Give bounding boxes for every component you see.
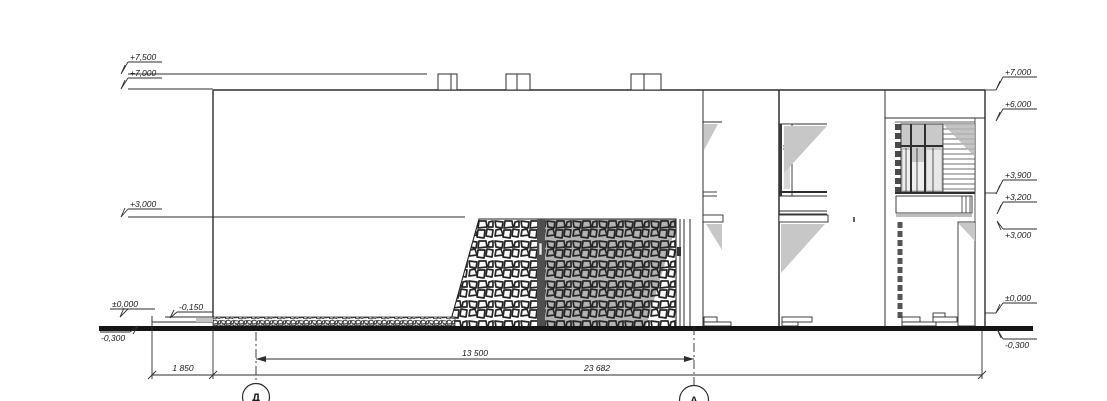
dimension-label: 23 682 [583, 363, 610, 373]
elevation-sheet: +7,500 +7,000 +3,000 ±0,000 -0,150 -0,30… [0, 0, 1107, 401]
axis-label: Д [252, 392, 260, 401]
bay-2 [779, 124, 854, 326]
level-label: +7,000 [1005, 67, 1032, 77]
level-label: +3,000 [130, 199, 157, 209]
level-label: +7,000 [130, 68, 157, 78]
level-label: -0,300 [101, 333, 125, 343]
elevation-drawing: +7,500 +7,000 +3,000 ±0,000 -0,150 -0,30… [0, 0, 1107, 401]
axis-grid: Д А [243, 326, 709, 401]
level-label: +7,500 [130, 52, 157, 62]
dimension-labels: 1 850 13 500 23 682 [172, 348, 610, 373]
roof-chimneys [438, 74, 661, 90]
dimension-label: 13 500 [462, 348, 488, 358]
level-label: -0,300 [1005, 340, 1029, 350]
left-elevation-labels: +7,500 +7,000 +3,000 ±0,000 -0,150 -0,30… [101, 52, 203, 343]
balcony-slab [779, 215, 828, 222]
left-elevation-markers [100, 62, 213, 334]
level-label: +3,900 [1005, 170, 1032, 180]
bay-1 [703, 122, 731, 326]
gate-post [537, 219, 545, 327]
bay-3 [885, 118, 985, 326]
level-label: +6,000 [1005, 99, 1032, 109]
level-label: +3,200 [1005, 192, 1032, 202]
dimension-label: 1 850 [172, 363, 194, 373]
axis-label: А [690, 395, 698, 401]
level-label: ±0,000 [1005, 293, 1031, 303]
step-shade [196, 318, 213, 322]
balcony-rail [896, 196, 972, 213]
ground-line [99, 326, 1033, 331]
level-label: ±0,000 [112, 299, 138, 309]
level-label: -0,150 [179, 302, 203, 312]
level-label: +3,000 [1005, 230, 1032, 240]
stone-screen [196, 219, 690, 330]
screen-right-frame [676, 219, 690, 330]
